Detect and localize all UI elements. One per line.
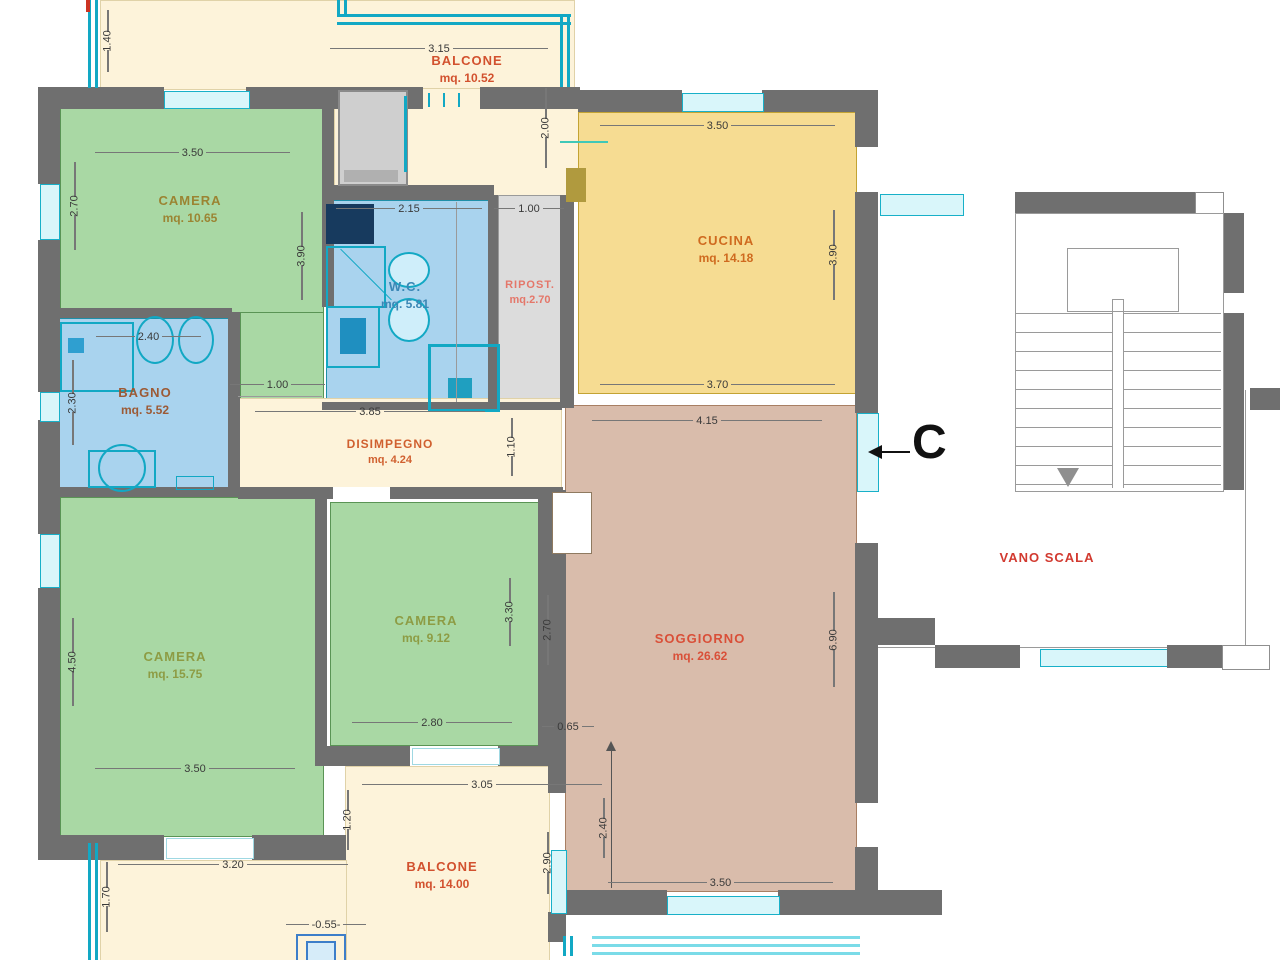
step-line: [1016, 351, 1112, 352]
room-name: CAMERA: [143, 648, 206, 666]
window: [667, 896, 780, 915]
dim-bag-left: 2.30: [66, 360, 80, 445]
room-area: mq.2.70: [510, 293, 551, 308]
wall-segment: [855, 192, 878, 413]
dim-sog-bottom: 3.50: [608, 876, 833, 889]
railing: [88, 843, 91, 960]
step-line: [1124, 427, 1221, 428]
room-label-balcone1: BALCONE mq. 10.52: [387, 52, 547, 87]
wall-segment: [872, 618, 935, 645]
window-tick: [458, 93, 460, 107]
room-area: mq. 4.24: [368, 453, 412, 468]
dim-below-width: 3.20: [118, 858, 348, 871]
dim-pillar: -0.55-: [286, 918, 366, 931]
dim-rail-bottom: 1.70: [100, 862, 114, 932]
step-line: [1124, 370, 1221, 371]
dim-balc2-width: 3.05: [362, 778, 602, 791]
step-line: [1016, 427, 1112, 428]
room-label-camera1: CAMERA mq. 10.65: [110, 192, 270, 227]
wall-segment: [315, 497, 327, 747]
dim-balc1-width: 3.15: [330, 42, 548, 55]
dim-sog-top: 4.15: [592, 414, 822, 427]
wall-segment: [855, 90, 878, 147]
door-leaf: [552, 492, 592, 554]
dim-cam3-bottom: 2.80: [352, 716, 512, 729]
wall-segment: [252, 835, 346, 860]
room-area: mq. 15.75: [148, 666, 203, 683]
window: [1040, 649, 1169, 667]
dim-wc-width: 2.15: [336, 202, 482, 215]
room-name: SOGGIORNO: [655, 630, 746, 648]
room-label-vano-scala: VANO SCALA: [967, 549, 1127, 567]
dim-bag-width: 2.40: [96, 330, 201, 343]
room-name: DISIMPEGNO: [347, 436, 434, 453]
room-label-disimpegno: DISIMPEGNO mq. 4.24: [310, 436, 470, 468]
room-label-cucina: CUCINA mq. 14.18: [646, 232, 806, 267]
step-line: [1016, 313, 1112, 314]
window-tick: [443, 93, 445, 107]
stair-down-arrow-icon: [1057, 468, 1079, 487]
dim-cuc-bottom: 3.70: [600, 378, 835, 391]
wall-segment: [45, 308, 232, 318]
section-line: [880, 451, 910, 453]
room-name: RIPOST.: [505, 278, 555, 293]
dim-balc2-left: 1.20: [341, 790, 355, 850]
railing: [344, 0, 347, 14]
dim-arrow-head: [606, 741, 616, 751]
dim-cam1-left: 2.70: [68, 162, 82, 250]
railing: [570, 936, 573, 956]
railing: [563, 936, 566, 956]
threshold-line: [238, 396, 322, 397]
window-tick: [428, 93, 430, 107]
room-area: mq. 10.52: [440, 70, 495, 87]
section-arrow-icon: [868, 445, 882, 459]
window: [166, 838, 254, 859]
door-swing-line: [560, 141, 608, 143]
railing: [337, 14, 571, 17]
room-label-bagno: BAGNO mq. 5.52: [65, 384, 225, 419]
room-label-camera2: CAMERA mq. 15.75: [95, 648, 255, 683]
toilet-bowl-icon: [98, 444, 146, 492]
dim-dis-height: 1.10: [505, 418, 519, 476]
step-line: [1016, 332, 1112, 333]
wall-corner: [1195, 192, 1224, 215]
dim-balc2-right: 2.90: [541, 832, 555, 894]
dim-cam1-door: 1.00: [230, 378, 325, 391]
room-area: mq. 14.00: [415, 876, 470, 893]
room-label-soggiorno: SOGGIORNO mq. 26.62: [620, 630, 780, 665]
door-opening: [333, 487, 390, 499]
wall-segment: [1167, 645, 1222, 668]
dim-cam1-right: 3.90: [295, 212, 309, 300]
shaft-base: [344, 170, 398, 182]
wall-segment: [778, 890, 942, 915]
stair-divider: [1123, 300, 1124, 488]
wall-segment: [855, 543, 878, 803]
dim-rip-width: 1.00: [494, 202, 564, 215]
dim-cuc-width: 3.50: [600, 119, 835, 132]
section-marker-label: C: [912, 415, 947, 470]
window: [412, 748, 500, 765]
dim-sog-left: 2.70: [541, 595, 555, 665]
room-name: CUCINA: [698, 232, 755, 250]
wall-segment: [1250, 388, 1280, 410]
step-line: [1016, 408, 1112, 409]
dim-cam1-width: 3.50: [95, 146, 290, 159]
window: [40, 534, 60, 588]
dim-cam3-right: 3.30: [503, 578, 517, 646]
wall-segment: [38, 420, 60, 534]
step-line: [1124, 465, 1221, 466]
step-line: [1124, 484, 1221, 485]
step-line: [1124, 389, 1221, 390]
wall-segment: [322, 185, 494, 200]
room-label-camera3: CAMERA mq. 9.12: [346, 612, 506, 647]
wall-corner: [1222, 645, 1270, 670]
railing: [560, 14, 563, 87]
dim-cam2-left: 4.50: [66, 618, 80, 706]
window: [40, 184, 60, 240]
wall-segment: [565, 890, 667, 915]
wall-segment: [228, 312, 240, 490]
wall-segment: [315, 746, 410, 766]
room-area: mq. 14.18: [699, 250, 754, 267]
pillar-core: [306, 941, 336, 960]
room-area: mq. 9.12: [402, 630, 450, 647]
wall-segment: [762, 90, 857, 112]
shower-drain-icon: [448, 378, 472, 398]
railing: [337, 0, 340, 14]
window: [682, 93, 764, 112]
wall-segment: [38, 835, 164, 860]
room-area: mq. 10.65: [163, 210, 218, 227]
stair-divider-cap: [1112, 299, 1124, 300]
dim-cuc-right: 3.90: [827, 210, 841, 300]
step-line: [1016, 446, 1112, 447]
dim-sog-inner: 2.40: [597, 798, 611, 858]
railing: [88, 0, 91, 88]
wall-segment: [935, 645, 1020, 668]
room-area: mq. 5.52: [121, 402, 169, 419]
step-line: [1124, 313, 1221, 314]
wall-segment: [1015, 192, 1195, 213]
railing: [95, 0, 98, 88]
dim-dis-width: 3.85: [255, 405, 485, 418]
step-line: [1124, 408, 1221, 409]
railing: [592, 944, 860, 947]
room-label-balcone2: BALCONE mq. 14.00: [362, 858, 522, 893]
window: [40, 392, 60, 422]
boundary-line: [1245, 390, 1246, 648]
room-name: BAGNO: [118, 384, 171, 402]
step-line: [1124, 446, 1221, 447]
room-name: W.C.: [389, 278, 421, 296]
dim-balc1-depth: 2.00: [539, 88, 553, 168]
railing-red-tick: [86, 0, 90, 12]
door-line: [404, 96, 407, 172]
step-line: [1016, 370, 1112, 371]
room-name: VANO SCALA: [1000, 549, 1095, 567]
room-area: mq. 5.81: [381, 296, 429, 313]
window: [880, 194, 964, 216]
room-label-wc: W.C. mq. 5.81: [330, 278, 480, 313]
step-line: [1124, 332, 1221, 333]
step-line: [1124, 351, 1221, 352]
dim-cam2-bottom: 3.50: [95, 762, 295, 775]
step-line: [1016, 465, 1112, 466]
stair-divider: [1112, 300, 1113, 488]
dim-sog-right: 6.90: [827, 592, 841, 687]
room-name: CAMERA: [394, 612, 457, 630]
room-name: CAMERA: [158, 192, 221, 210]
wall-segment: [480, 87, 580, 109]
room-label-ripostiglio: RIPOST. mq.2.70: [470, 278, 590, 309]
window: [164, 91, 250, 109]
wall-segment: [238, 487, 563, 499]
dim-rail-top: 1.40: [101, 10, 115, 72]
wall-segment: [38, 588, 60, 835]
wall-segment: [578, 90, 682, 112]
step-line: [1016, 389, 1112, 390]
door-block-cucina: [566, 168, 586, 202]
railing: [592, 936, 860, 939]
railing: [567, 14, 570, 87]
dim-sog-step: 0.65: [542, 720, 594, 733]
room-name: BALCONE: [406, 858, 477, 876]
shower-drain-icon: [68, 338, 84, 353]
wall-segment: [38, 87, 60, 184]
floor-plan: C CAMERA mq. 10.65 BAGNO mq. 5.52 W.C. m…: [0, 0, 1280, 960]
railing: [592, 952, 860, 955]
bath-mat-icon: [176, 476, 214, 490]
sink-basin-icon: [340, 318, 366, 354]
room-area: mq. 26.62: [673, 648, 728, 665]
railing: [337, 22, 571, 25]
